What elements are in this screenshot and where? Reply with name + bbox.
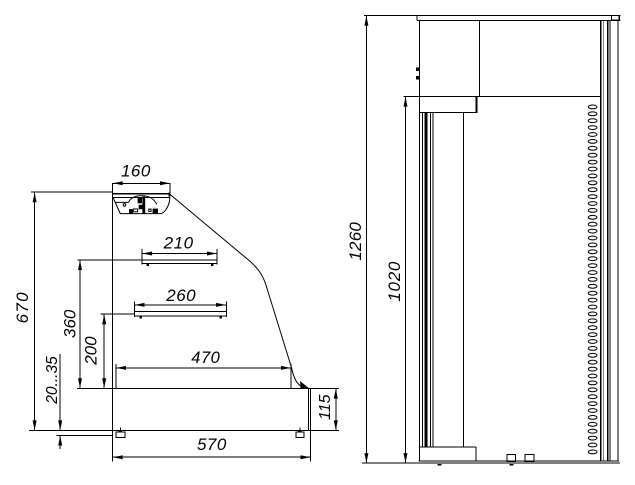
svg-text:670: 670 [13,291,32,323]
svg-text:470: 470 [191,349,220,367]
svg-text:1260: 1260 [346,222,365,261]
svg-text:1020: 1020 [385,261,404,302]
svg-text:260: 260 [165,286,196,305]
svg-text:200: 200 [82,336,101,366]
svg-text:570: 570 [197,435,227,454]
svg-text:210: 210 [163,233,194,252]
svg-text:20...35: 20...35 [44,356,61,405]
svg-text:360: 360 [61,309,80,338]
svg-text:160: 160 [121,162,151,181]
svg-text:115: 115 [317,394,334,420]
